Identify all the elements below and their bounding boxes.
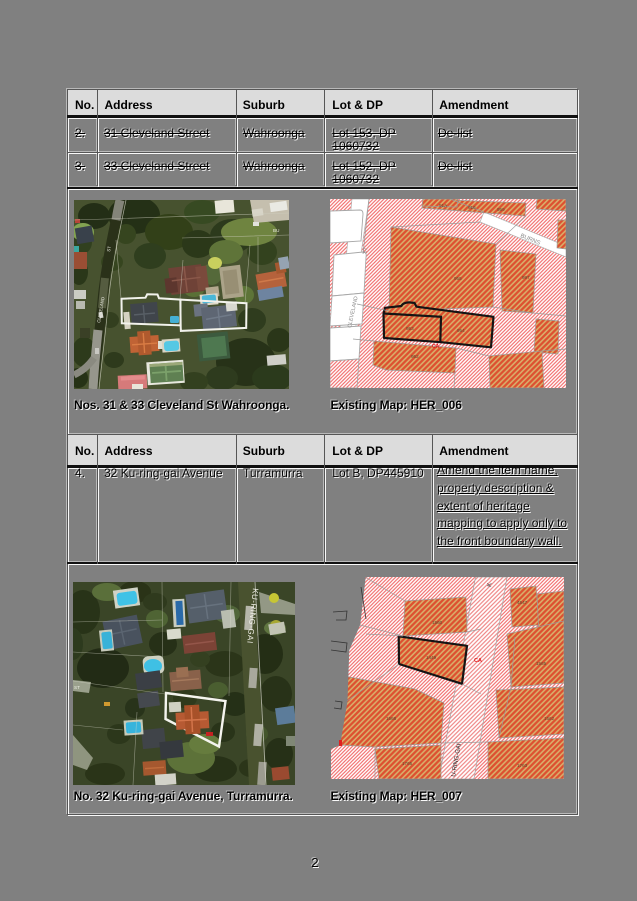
svg-text:953: 953 (406, 326, 414, 331)
svg-text:1763: 1763 (517, 763, 528, 768)
svg-text:1562: 1562 (544, 716, 555, 721)
svg-text:997: 997 (522, 275, 530, 280)
svg-text:91A: 91A (439, 203, 448, 208)
svg-text:K: K (487, 583, 493, 588)
svg-text:1560: 1560 (432, 620, 443, 625)
svg-text:1568: 1568 (386, 716, 397, 721)
svg-text:959: 959 (497, 207, 505, 212)
svg-text:1765: 1765 (402, 761, 413, 766)
svg-text:4547: 4547 (517, 600, 528, 605)
svg-text:1449: 1449 (426, 655, 437, 660)
svg-text:954: 954 (457, 328, 465, 333)
svg-text:916: 916 (468, 205, 476, 210)
svg-text:CA: CA (474, 658, 482, 664)
svg-text:ST: ST (74, 685, 80, 690)
svg-text:1565: 1565 (536, 661, 547, 666)
svg-text:952: 952 (411, 354, 419, 359)
svg-text:955: 955 (454, 276, 462, 281)
svg-text:BU: BU (273, 228, 279, 233)
svg-text:CA: CA (432, 344, 440, 350)
